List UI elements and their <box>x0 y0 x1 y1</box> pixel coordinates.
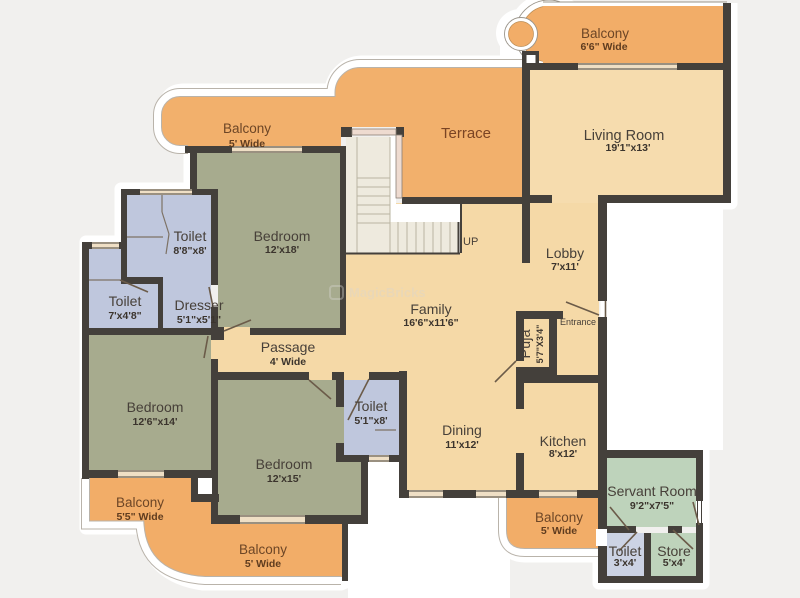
svg-text:5' Wide: 5' Wide <box>245 558 281 570</box>
svg-text:Entrance: Entrance <box>560 317 596 327</box>
svg-text:12'x15': 12'x15' <box>267 473 301 485</box>
svg-text:Balcony: Balcony <box>223 121 271 136</box>
svg-text:8'x12': 8'x12' <box>549 448 577 460</box>
svg-text:11'x12': 11'x12' <box>445 439 479 451</box>
svg-text:Servant Room: Servant Room <box>607 483 696 499</box>
svg-text:Balcony: Balcony <box>581 26 629 41</box>
svg-text:4' Wide: 4' Wide <box>270 356 306 368</box>
svg-text:5'1"x5'1": 5'1"x5'1" <box>177 314 221 326</box>
svg-text:7'x4'8": 7'x4'8" <box>108 310 141 322</box>
svg-text:16'6"x11'6": 16'6"x11'6" <box>403 317 458 329</box>
svg-text:5'1"x8': 5'1"x8' <box>354 415 387 427</box>
svg-text:3'x4': 3'x4' <box>614 557 637 569</box>
svg-text:Lobby: Lobby <box>546 245 584 261</box>
svg-text:7'x11': 7'x11' <box>551 261 579 273</box>
svg-text:Puja: Puja <box>518 329 534 359</box>
svg-text:5' Wide: 5' Wide <box>229 138 265 150</box>
svg-text:Bedroom: Bedroom <box>127 399 184 415</box>
svg-text:12'x18': 12'x18' <box>265 244 299 256</box>
svg-text:Toilet: Toilet <box>109 293 142 309</box>
svg-text:12'6"x14': 12'6"x14' <box>132 416 177 428</box>
svg-text:Family: Family <box>410 301 451 317</box>
svg-text:8'8"x8': 8'8"x8' <box>173 245 206 257</box>
svg-text:19'1"x13': 19'1"x13' <box>605 142 650 154</box>
svg-text:MagicBricks: MagicBricks <box>349 285 426 300</box>
svg-text:Bedroom: Bedroom <box>256 456 313 472</box>
svg-text:UP: UP <box>463 236 478 248</box>
svg-text:Terrace: Terrace <box>441 125 491 142</box>
svg-text:Balcony: Balcony <box>239 542 287 557</box>
svg-text:5'7"X3'4": 5'7"X3'4" <box>535 325 545 364</box>
svg-text:5'x4': 5'x4' <box>663 557 686 569</box>
svg-text:6'6" Wide: 6'6" Wide <box>580 41 627 53</box>
svg-text:5'5" Wide: 5'5" Wide <box>116 511 163 523</box>
svg-text:Kitchen: Kitchen <box>540 433 587 449</box>
svg-text:Dining: Dining <box>442 422 482 438</box>
svg-text:Toilet: Toilet <box>174 228 207 244</box>
svg-text:5' Wide: 5' Wide <box>541 525 577 537</box>
svg-text:Passage: Passage <box>261 339 316 355</box>
svg-text:Balcony: Balcony <box>116 495 164 510</box>
svg-text:Bedroom: Bedroom <box>254 228 311 244</box>
svg-text:Balcony: Balcony <box>535 510 583 525</box>
svg-text:Toilet: Toilet <box>355 398 388 414</box>
svg-text:9'2"x7'5": 9'2"x7'5" <box>630 500 674 512</box>
svg-text:Dresser: Dresser <box>174 297 223 313</box>
